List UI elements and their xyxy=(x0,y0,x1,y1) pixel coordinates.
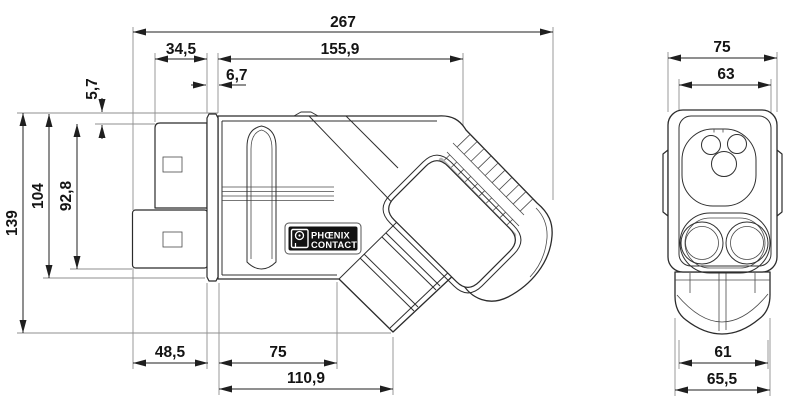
dim-front-face-width: 63 xyxy=(717,66,735,83)
connector-front-view xyxy=(663,110,782,334)
dim-flange-width: 6,7 xyxy=(226,67,248,84)
dimension-drawing-canvas: PHŒNIX CONTACT xyxy=(0,0,800,413)
dim-grip-length: 155,9 xyxy=(321,41,360,58)
logo-brand-line1: PHŒNIX xyxy=(311,231,351,241)
dim-total-height: 139 xyxy=(4,210,21,236)
dim-total-length: 267 xyxy=(330,14,356,31)
connector-side-view: PHŒNIX CONTACT xyxy=(133,112,553,332)
dim-step-offset: 5,7 xyxy=(84,78,101,100)
plug-tip-lower-step xyxy=(133,210,208,268)
dim-front-bottom-width: 61 xyxy=(714,344,732,361)
phoenix-contact-logo: PHŒNIX CONTACT xyxy=(285,223,361,254)
latch-bump-right xyxy=(777,150,782,216)
flange-plate xyxy=(207,114,218,281)
dim-tip-length: 34,5 xyxy=(166,41,197,58)
dim-body-bottom: 75 xyxy=(269,344,287,361)
dim-tip-bottom: 48,5 xyxy=(155,344,186,361)
dim-cable-bottom: 110,9 xyxy=(287,370,325,387)
dim-front-housing-width: 65,5 xyxy=(707,371,738,388)
latch-bump-left xyxy=(663,150,668,216)
front-housing xyxy=(675,272,770,334)
dim-front-total-width: 75 xyxy=(713,39,731,56)
logo-brand-line2: CONTACT xyxy=(311,240,357,250)
dim-tip-height: 92,8 xyxy=(58,181,75,212)
technical-drawing-page: PHŒNIX CONTACT xyxy=(0,0,800,413)
dim-body-height: 104 xyxy=(30,183,47,209)
